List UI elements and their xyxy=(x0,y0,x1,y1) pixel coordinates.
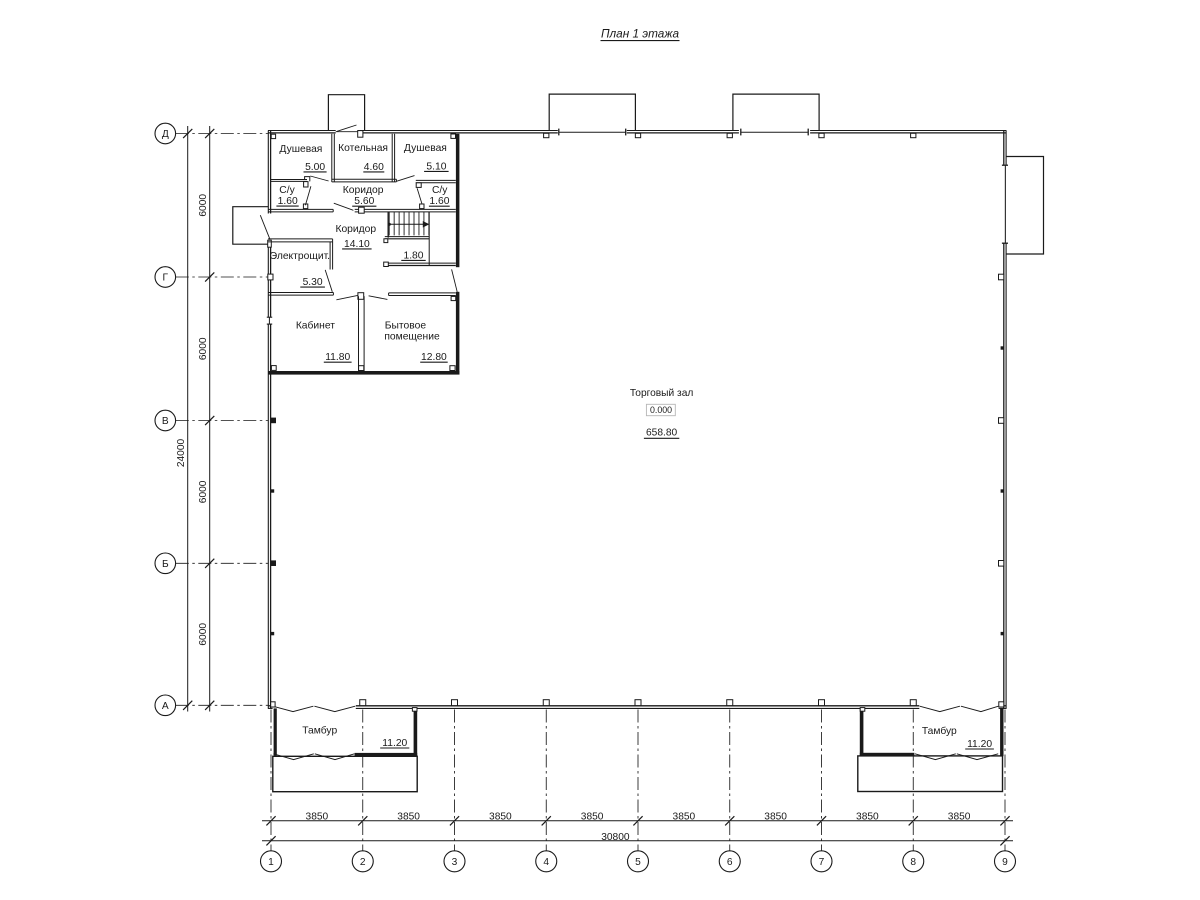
svg-text:3850: 3850 xyxy=(856,812,879,823)
svg-text:1: 1 xyxy=(268,857,274,868)
svg-text:Котельная: Котельная xyxy=(338,143,388,154)
svg-text:Б: Б xyxy=(162,559,169,570)
svg-text:11.20: 11.20 xyxy=(967,739,992,750)
svg-text:Д: Д xyxy=(162,129,169,140)
svg-text:6000: 6000 xyxy=(198,337,209,360)
svg-text:Тамбур: Тамбур xyxy=(302,725,337,737)
svg-text:30800: 30800 xyxy=(601,832,630,843)
svg-text:7: 7 xyxy=(819,857,825,868)
svg-text:1.60: 1.60 xyxy=(429,196,449,207)
svg-text:11.20: 11.20 xyxy=(382,738,407,749)
svg-text:Коридор: Коридор xyxy=(343,185,384,196)
svg-text:8: 8 xyxy=(910,857,916,868)
svg-text:0.000: 0.000 xyxy=(650,405,672,415)
svg-text:3850: 3850 xyxy=(764,812,787,823)
svg-text:А: А xyxy=(162,701,169,712)
svg-text:1.60: 1.60 xyxy=(278,196,298,207)
svg-text:2: 2 xyxy=(360,857,366,868)
svg-text:4: 4 xyxy=(543,857,549,868)
svg-text:Душевая: Душевая xyxy=(279,144,322,155)
svg-text:5.60: 5.60 xyxy=(354,196,374,207)
svg-text:658.80: 658.80 xyxy=(646,428,677,439)
svg-text:Тамбур: Тамбур xyxy=(922,725,957,737)
svg-text:Душевая: Душевая xyxy=(404,143,447,154)
svg-text:3850: 3850 xyxy=(489,812,512,823)
svg-text:3850: 3850 xyxy=(581,812,604,823)
svg-text:Кабинет: Кабинет xyxy=(296,320,335,332)
svg-text:24000: 24000 xyxy=(176,439,187,468)
svg-text:4.60: 4.60 xyxy=(364,162,384,173)
svg-text:3850: 3850 xyxy=(397,812,420,823)
svg-text:Бытовое: Бытовое xyxy=(385,321,427,332)
svg-text:Г: Г xyxy=(163,273,169,284)
svg-text:С/у: С/у xyxy=(279,185,295,196)
svg-text:План 1 этажа: План 1 этажа xyxy=(601,26,680,40)
svg-text:6000: 6000 xyxy=(198,194,209,217)
svg-text:1.80: 1.80 xyxy=(403,250,423,261)
svg-text:12.80: 12.80 xyxy=(421,352,447,363)
svg-text:3850: 3850 xyxy=(948,812,971,823)
svg-text:6000: 6000 xyxy=(198,480,209,503)
svg-text:3850: 3850 xyxy=(673,812,696,823)
svg-text:помещение: помещение xyxy=(384,331,440,342)
svg-text:6000: 6000 xyxy=(198,623,209,646)
svg-text:С/у: С/у xyxy=(432,185,448,196)
svg-text:6: 6 xyxy=(727,857,733,868)
svg-text:3850: 3850 xyxy=(306,812,329,823)
svg-text:Торговый зал: Торговый зал xyxy=(630,388,694,399)
svg-text:5.00: 5.00 xyxy=(305,162,325,173)
svg-text:5.10: 5.10 xyxy=(426,161,446,172)
svg-text:14.10: 14.10 xyxy=(344,239,370,250)
svg-text:Коридор: Коридор xyxy=(335,224,376,235)
svg-text:5: 5 xyxy=(635,857,641,868)
svg-text:В: В xyxy=(162,416,169,427)
svg-text:3: 3 xyxy=(452,857,458,868)
svg-text:9: 9 xyxy=(1002,857,1008,868)
svg-text:Электрощит.: Электрощит. xyxy=(270,251,330,262)
svg-text:5.30: 5.30 xyxy=(303,277,323,288)
svg-text:11.80: 11.80 xyxy=(325,352,350,363)
